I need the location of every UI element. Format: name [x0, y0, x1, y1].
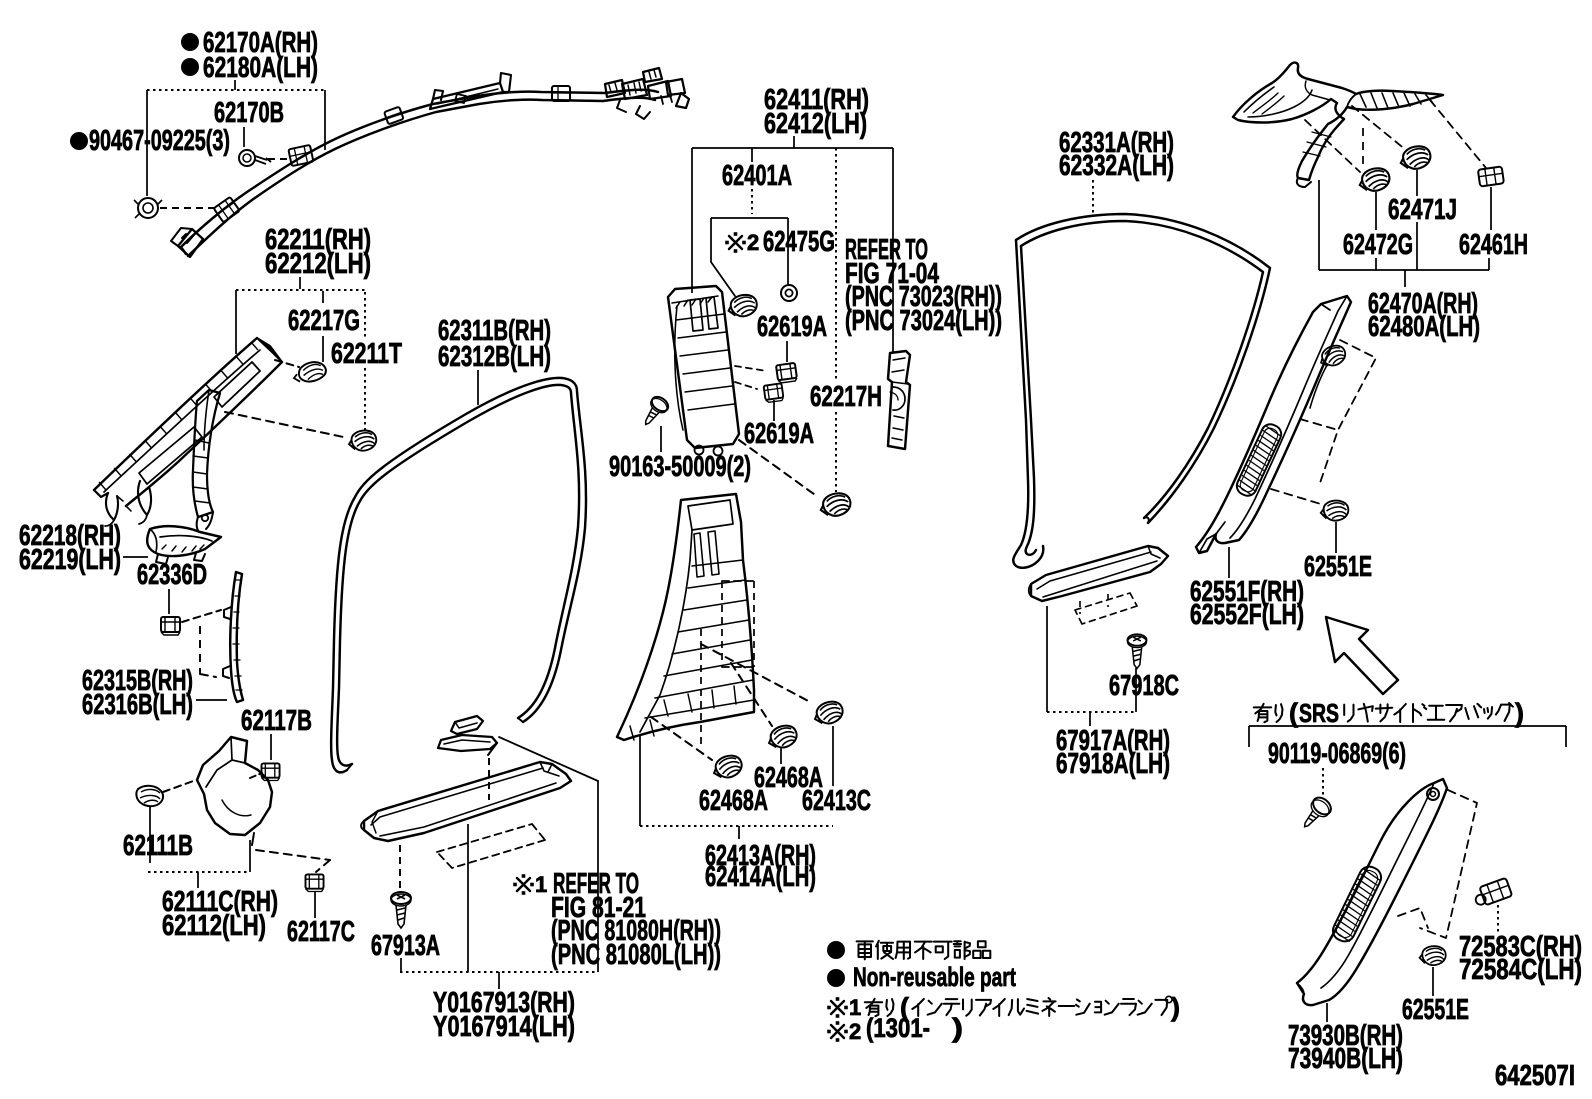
svg-text:Y0167914(LH): Y0167914(LH) — [433, 1011, 575, 1043]
svg-text:(: ( — [1289, 698, 1298, 728]
svg-text:62619A: 62619A — [757, 311, 827, 343]
svg-text:62471J: 62471J — [1388, 194, 1457, 226]
svg-text:62117B: 62117B — [241, 705, 312, 737]
svg-text:62414A(LH): 62414A(LH) — [705, 861, 816, 893]
svg-text:62480A(LH): 62480A(LH) — [1368, 311, 1480, 343]
svg-text:73940B(LH): 73940B(LH) — [1288, 1043, 1403, 1075]
svg-text:67913A: 67913A — [371, 930, 440, 962]
svg-text:62412(LH): 62412(LH) — [764, 108, 867, 140]
svg-text:62217G: 62217G — [288, 305, 360, 337]
svg-text:2: 2 — [747, 230, 759, 255]
svg-text:62475G: 62475G — [763, 226, 835, 258]
svg-text:(1301-: (1301- — [866, 1013, 930, 1043]
svg-text:62180A(LH): 62180A(LH) — [203, 52, 318, 84]
svg-text:72584C(LH): 72584C(LH) — [1459, 954, 1582, 986]
svg-text:62619A: 62619A — [744, 418, 814, 450]
svg-text:1: 1 — [849, 995, 861, 1020]
svg-text:62219(LH): 62219(LH) — [19, 544, 121, 576]
svg-text:62316B(LH): 62316B(LH) — [82, 689, 193, 721]
svg-text:62332A(LH): 62332A(LH) — [1059, 150, 1174, 182]
svg-text:62312B(LH): 62312B(LH) — [438, 341, 551, 373]
svg-text:): ) — [1171, 992, 1180, 1022]
svg-text:): ) — [1515, 698, 1524, 728]
svg-text:62211T: 62211T — [331, 338, 402, 370]
svg-text:(: ( — [900, 992, 909, 1022]
svg-text:62461H: 62461H — [1459, 229, 1528, 261]
svg-text:62413C: 62413C — [802, 785, 871, 817]
svg-text:(PNC 81080L(LH)): (PNC 81080L(LH)) — [551, 939, 721, 971]
svg-text:67918C: 67918C — [1109, 670, 1179, 702]
svg-text:62117C: 62117C — [287, 916, 355, 948]
svg-text:90467-09225(3): 90467-09225(3) — [89, 125, 230, 157]
svg-text:62112(LH): 62112(LH) — [162, 910, 266, 942]
svg-text:(PNC 73024(LH)): (PNC 73024(LH)) — [845, 305, 1002, 337]
svg-text:Non-reusable part: Non-reusable part — [853, 962, 1016, 992]
svg-text:2: 2 — [849, 1019, 861, 1044]
svg-text:62468A: 62468A — [699, 785, 768, 817]
svg-text:62217H: 62217H — [810, 381, 882, 413]
svg-text:90119-06869(6): 90119-06869(6) — [1268, 738, 1406, 770]
svg-text:62401A: 62401A — [722, 160, 792, 192]
svg-text:90163-50009(2): 90163-50009(2) — [609, 451, 751, 483]
svg-text:62212(LH): 62212(LH) — [265, 248, 371, 280]
svg-text:642507I: 642507I — [1495, 1060, 1575, 1092]
svg-text:1: 1 — [535, 872, 547, 897]
svg-text:62336D: 62336D — [137, 559, 207, 591]
svg-text:62551E: 62551E — [1304, 551, 1372, 583]
svg-text:62472G: 62472G — [1343, 229, 1413, 261]
svg-text:): ) — [952, 1013, 963, 1043]
svg-text:62552F(LH): 62552F(LH) — [1190, 599, 1304, 631]
svg-text:62111B: 62111B — [123, 830, 193, 862]
svg-text:SRS: SRS — [1299, 698, 1339, 728]
svg-text:67918A(LH): 67918A(LH) — [1056, 748, 1170, 780]
svg-text:62551E: 62551E — [1402, 994, 1469, 1026]
